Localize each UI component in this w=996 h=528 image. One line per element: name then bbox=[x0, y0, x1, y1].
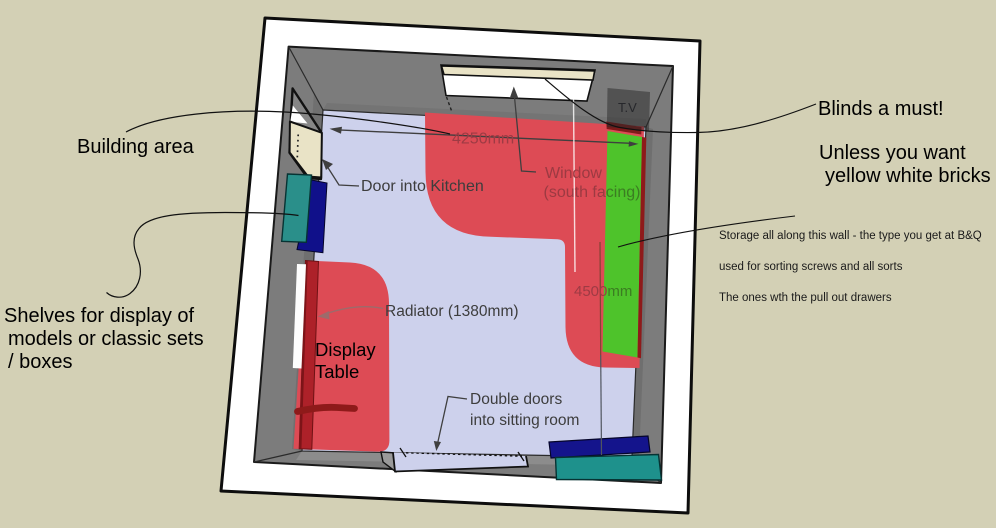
svg-text:Table: Table bbox=[315, 361, 359, 382]
svg-text:Shelves for display of: Shelves for display of bbox=[4, 305, 195, 327]
svg-text:(south facing): (south facing) bbox=[544, 184, 641, 201]
svg-text:into sitting room: into sitting room bbox=[470, 412, 579, 429]
svg-text:/ boxes: / boxes bbox=[8, 351, 72, 373]
svg-text:4250mm: 4250mm bbox=[452, 131, 514, 148]
svg-text:The ones wth the pull out draw: The ones wth the pull out drawers bbox=[719, 292, 892, 304]
svg-text:Storage all along this wall -: Storage all along this wall - the type y… bbox=[719, 230, 982, 242]
svg-text:T.V: T.V bbox=[618, 100, 637, 115]
svg-text:Double doors: Double doors bbox=[470, 391, 562, 408]
svg-text:Building area: Building area bbox=[77, 136, 195, 158]
svg-text:Door into Kitchen: Door into Kitchen bbox=[361, 178, 484, 195]
svg-text:Radiator (1380mm): Radiator (1380mm) bbox=[385, 303, 519, 320]
svg-text:4500mm: 4500mm bbox=[574, 283, 632, 300]
svg-text:Display: Display bbox=[315, 339, 376, 360]
svg-text:Unless you want: Unless you want bbox=[819, 142, 966, 164]
svg-text:Blinds a must!: Blinds a must! bbox=[818, 98, 944, 120]
svg-text:models or classic sets: models or classic sets bbox=[8, 328, 204, 350]
svg-text:yellow white bricks: yellow white bricks bbox=[825, 165, 991, 187]
svg-text:Window: Window bbox=[545, 165, 602, 182]
svg-text:used for sorting screws and al: used for sorting screws and all sorts bbox=[719, 261, 903, 273]
